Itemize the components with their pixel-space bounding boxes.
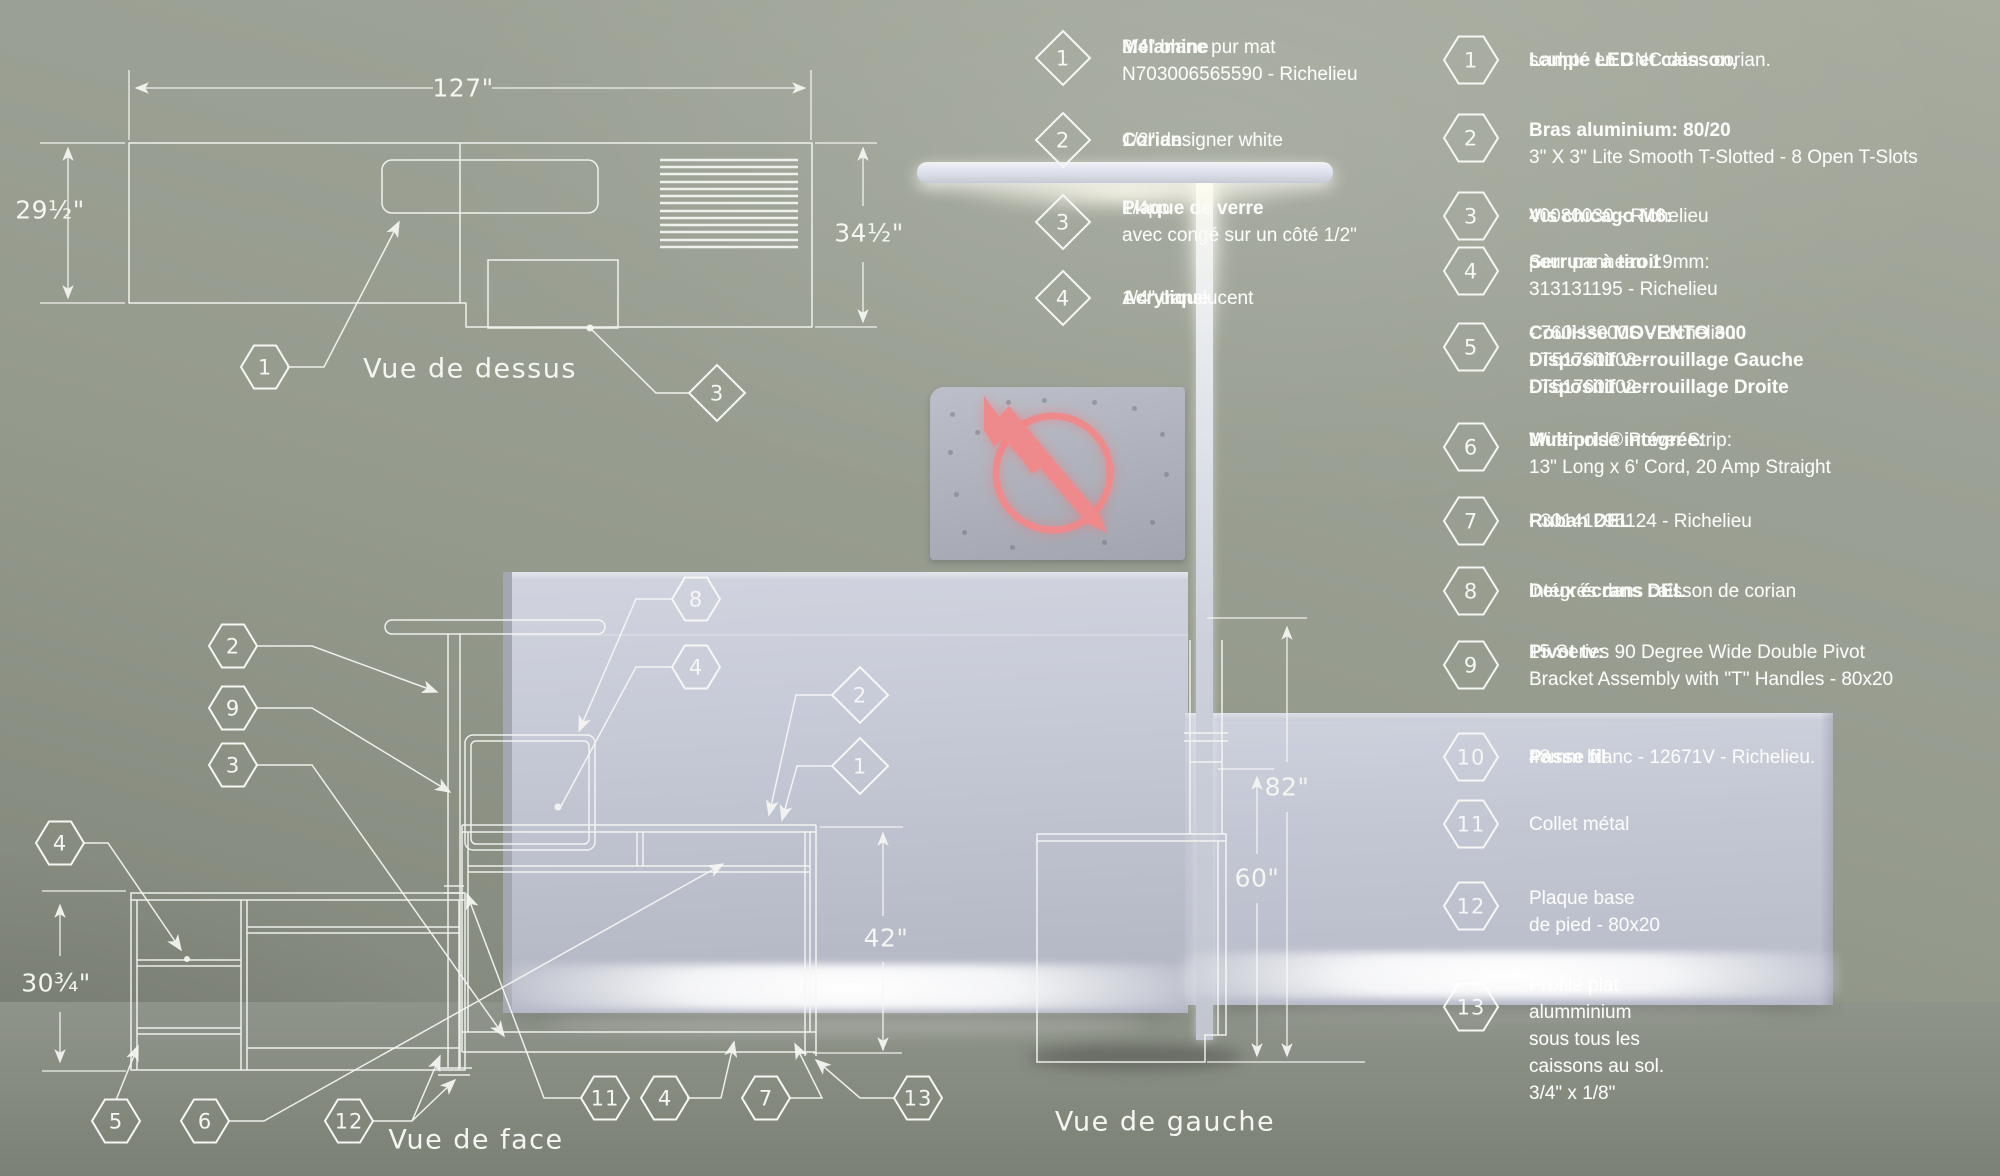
callout-number: 8 [1464,580,1478,604]
callout-number: 5 [1464,336,1478,360]
leader-lines [84,222,894,1121]
callout-number: 12 [335,1110,364,1134]
callout-number: 1 [1464,49,1478,73]
callout-number: 4 [53,832,67,856]
callout-number: 4 [1464,260,1478,284]
callout-number: 9 [226,697,240,721]
callout-number: 1 [1056,47,1070,71]
callout-number: 1 [853,755,867,779]
callout-number: 7 [1464,510,1478,534]
led-strip-right [1180,952,1840,998]
callout-number: 11 [591,1087,620,1111]
plan-hatch-screens [660,160,798,247]
callout-number: 5 [109,1110,123,1134]
callout-number: 9 [1464,654,1478,678]
callout-number: 13 [1457,996,1486,1020]
callout-number: 2 [853,684,867,708]
dimension-lines [40,70,1365,1071]
spec-sheet: 1329345612842111471312341234567891011121… [0,0,2000,1176]
callout-number: 10 [1457,746,1486,770]
callout-number: 11 [1457,813,1486,837]
callout-number: 12 [1457,895,1486,919]
callout-number: 7 [759,1087,773,1111]
callout-number: 3 [710,382,724,406]
callout-number: 3 [226,754,240,778]
callout-number: 4 [1056,287,1070,311]
callout-number: 8 [689,588,703,612]
callout-number: 1 [258,356,272,380]
callout-number: 4 [658,1087,672,1111]
callout-number: 3 [1056,211,1070,235]
callout-number: 13 [904,1087,933,1111]
callout-number: 3 [1464,205,1478,229]
callout-number: 2 [1464,127,1478,151]
callout-number: 2 [1056,129,1070,153]
callout-number: 4 [689,656,703,680]
drawing-overlay: 1329345612842111471312341234567891011121… [0,0,2000,1176]
callout-number: 2 [226,635,240,659]
callout-number: 6 [198,1110,212,1134]
callout-number: 6 [1464,436,1478,460]
